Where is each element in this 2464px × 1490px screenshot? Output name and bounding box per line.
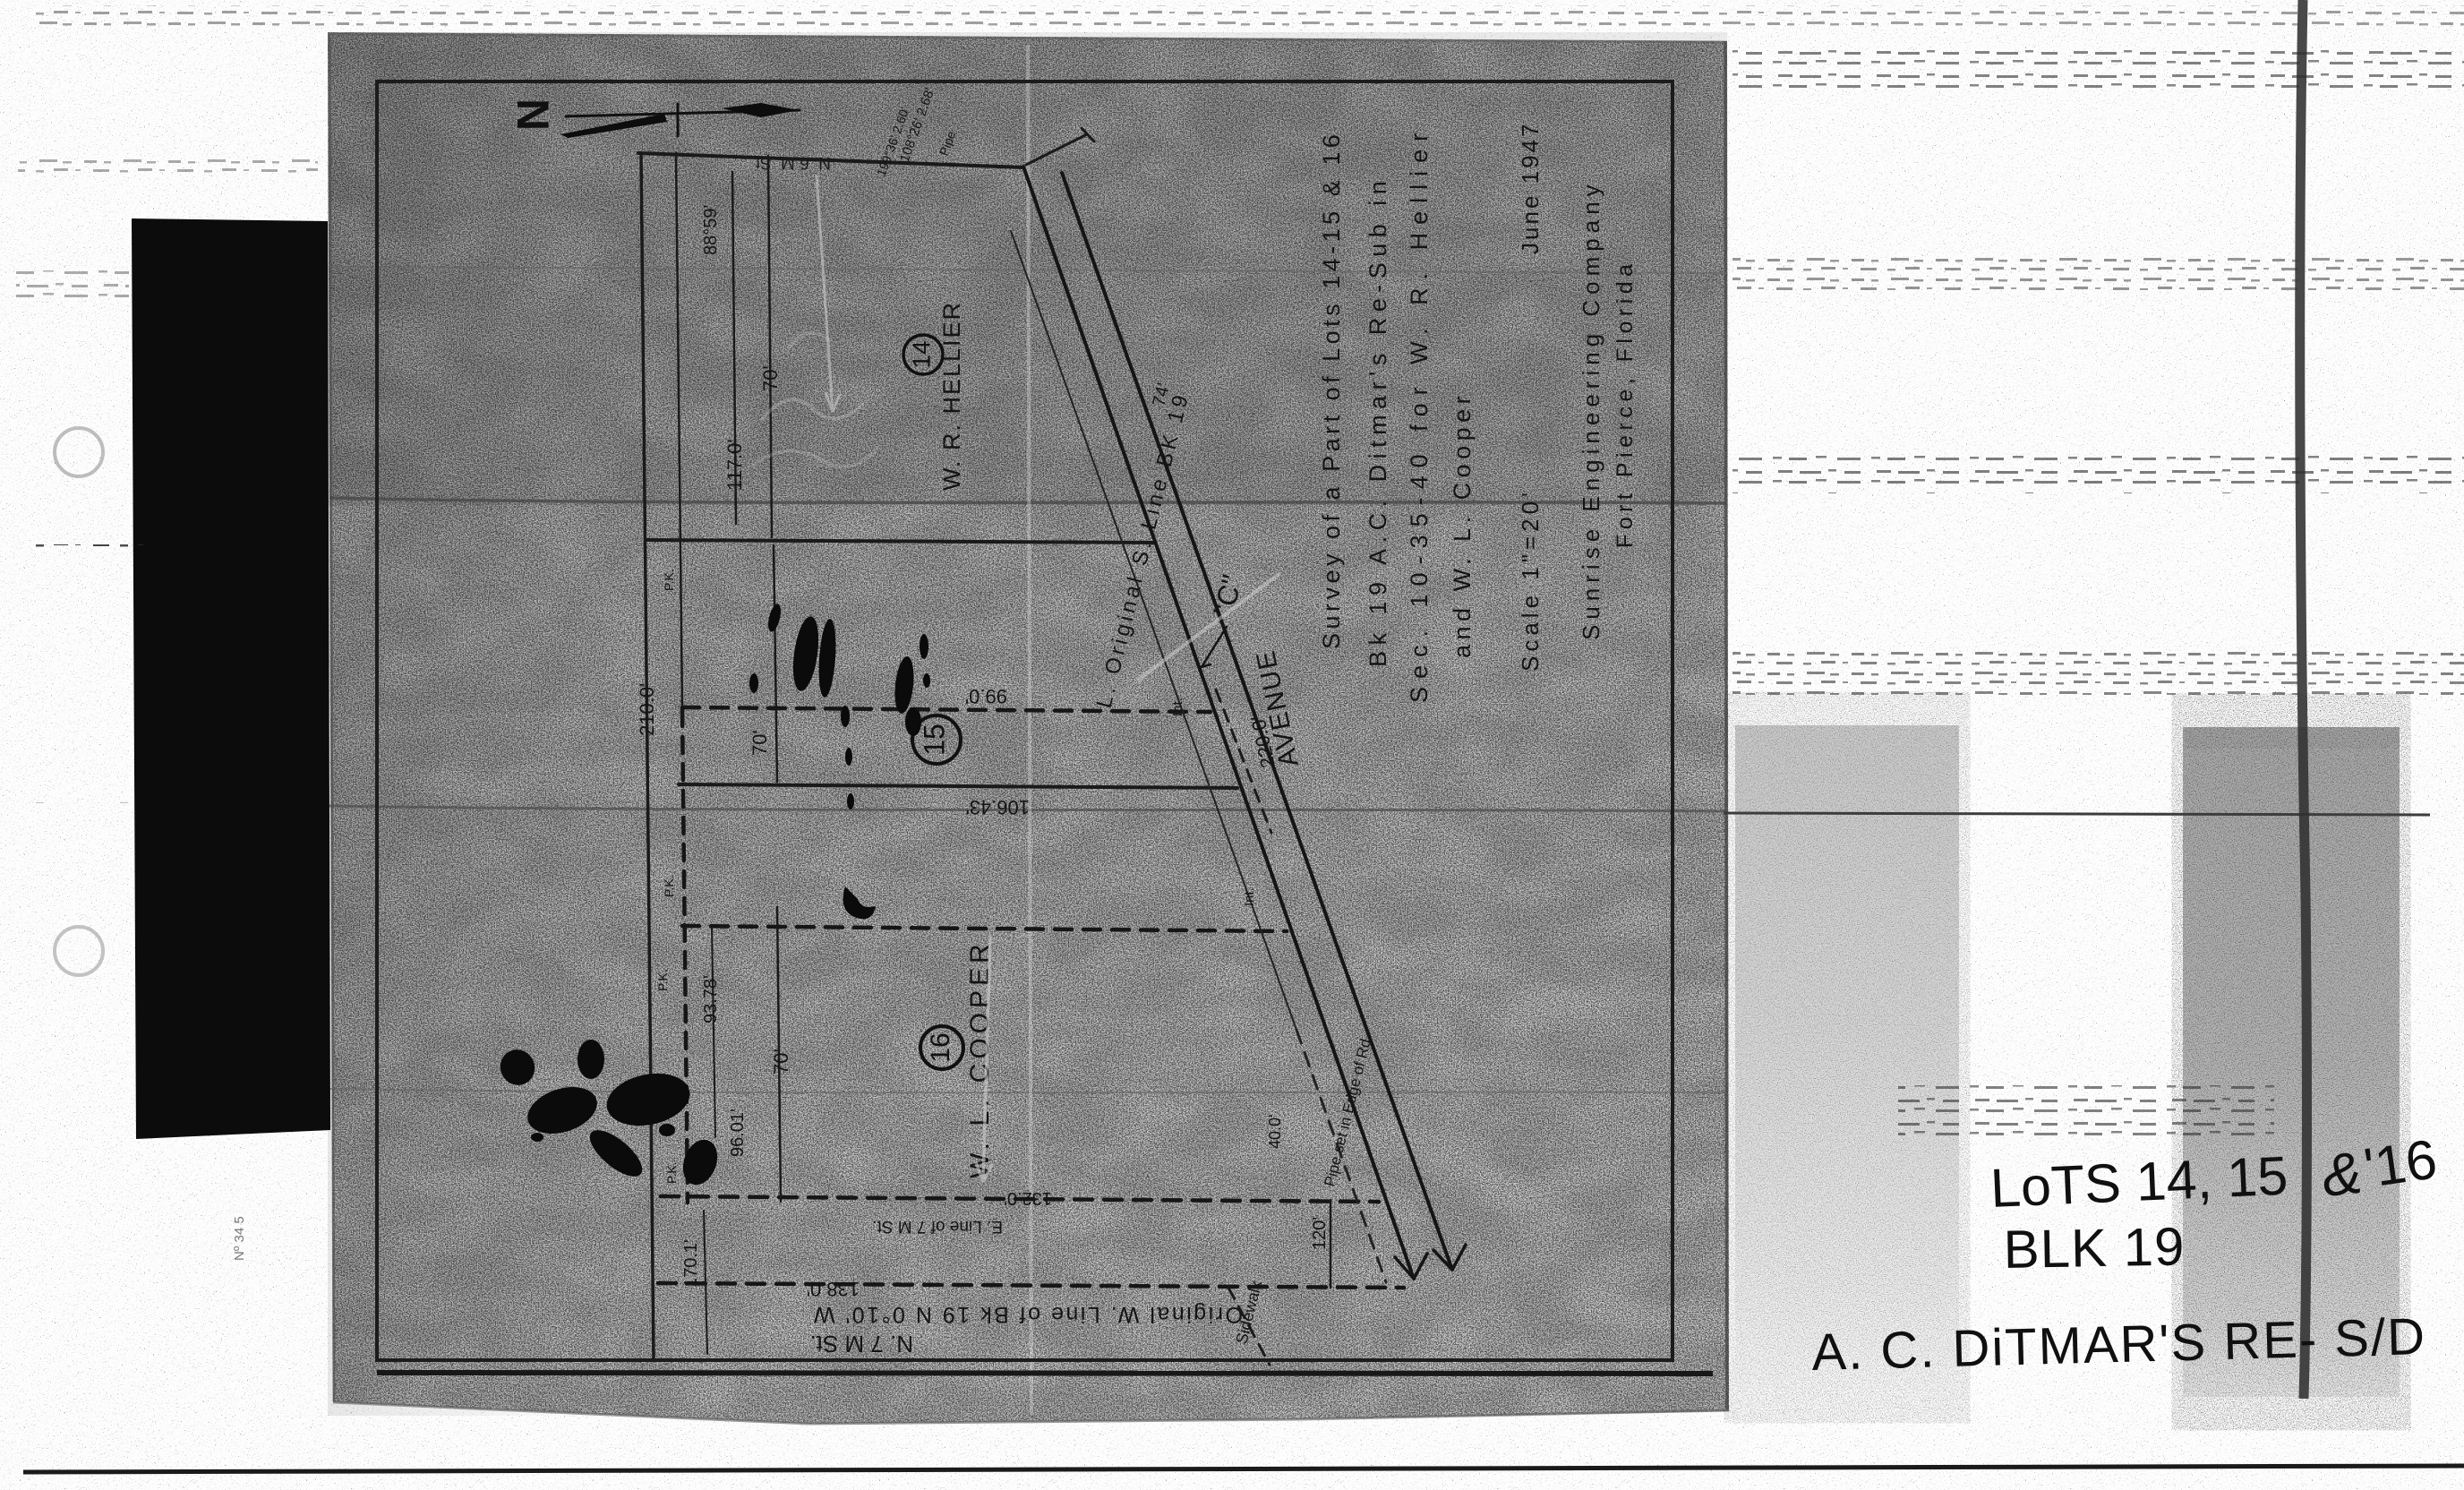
- svg-text:P.K.: P.K.: [664, 1161, 679, 1184]
- svg-text:Nº 34 5: Nº 34 5: [232, 1216, 247, 1261]
- svg-text:15: 15: [918, 724, 950, 756]
- svg-text:106.43': 106.43': [966, 796, 1031, 818]
- svg-text:BLK 19: BLK 19: [2003, 1216, 2186, 1280]
- svg-text:93.78': 93.78': [701, 975, 721, 1023]
- svg-text:N: N: [508, 98, 558, 131]
- svg-text:70': 70': [759, 365, 782, 391]
- svg-text:96.01': 96.01': [728, 1109, 748, 1157]
- svg-text:40.0': 40.0': [1266, 1115, 1284, 1149]
- svg-text:W. R. HELLIER: W. R. HELLIER: [938, 301, 965, 491]
- svg-text:Sunrise Engineering Company: Sunrise Engineering Company: [1578, 179, 1604, 640]
- svg-text:Int.: Int.: [1242, 887, 1257, 906]
- svg-text:P.K.: P.K.: [662, 569, 676, 591]
- svg-text:Original W. Line of Bk 19 N 0: Original W. Line of Bk 19 N 0°10' W: [811, 1302, 1243, 1327]
- svg-text:Bk 19 A.C. Ditmar's Re-Sub in: Bk 19 A.C. Ditmar's Re-Sub in: [1365, 176, 1391, 667]
- svg-text:June 1947: June 1947: [1517, 122, 1544, 254]
- svg-text:99.0': 99.0': [965, 685, 1007, 707]
- svg-text:70': 70': [749, 730, 771, 756]
- svg-text:P.K.: P.K.: [662, 875, 676, 897]
- svg-text:Fort Pierce, Florida: Fort Pierce, Florida: [1613, 259, 1638, 548]
- svg-text:88°59': 88°59': [701, 205, 721, 255]
- svg-text:120': 120': [1310, 1217, 1330, 1250]
- svg-text:170.1': 170.1': [681, 1239, 701, 1288]
- svg-text:Survey of a Part of Lots 14-15: Survey of a Part of Lots 14-15 & 16: [1318, 131, 1345, 649]
- svg-text:138.0': 138.0': [807, 1278, 860, 1300]
- svg-text:&: &: [2319, 1139, 2366, 1209]
- svg-text:Scale 1"=20': Scale 1"=20': [1517, 488, 1544, 672]
- svg-text:Sec. 10-35-40 for W. R. Hellie: Sec. 10-35-40 for W. R. Hellier: [1406, 125, 1433, 703]
- svg-text:70': 70': [770, 1049, 792, 1075]
- svg-text:E. Line of 7 M St.: E. Line of 7 M St.: [872, 1217, 1003, 1236]
- svg-text:Int.: Int.: [1170, 698, 1185, 716]
- svg-text:P.K.: P.K.: [655, 969, 670, 991]
- svg-text:and W. L. Cooper: and W. L. Cooper: [1449, 391, 1476, 658]
- svg-text:LoTS 14, 15: LoTS 14, 15: [1989, 1145, 2289, 1219]
- svg-text:132.0': 132.0': [1004, 1188, 1052, 1208]
- svg-text:14: 14: [907, 340, 935, 368]
- svg-text:16: 16: [926, 1032, 955, 1062]
- svg-text:N. 7 M St.: N. 7 M St.: [809, 1331, 913, 1357]
- svg-text:'16: '16: [2360, 1128, 2441, 1200]
- svg-text:N. 6 M. St: N. 6 M. St: [755, 153, 831, 172]
- svg-text:210.0': 210.0': [636, 683, 658, 736]
- svg-text:117.0': 117.0': [723, 439, 746, 491]
